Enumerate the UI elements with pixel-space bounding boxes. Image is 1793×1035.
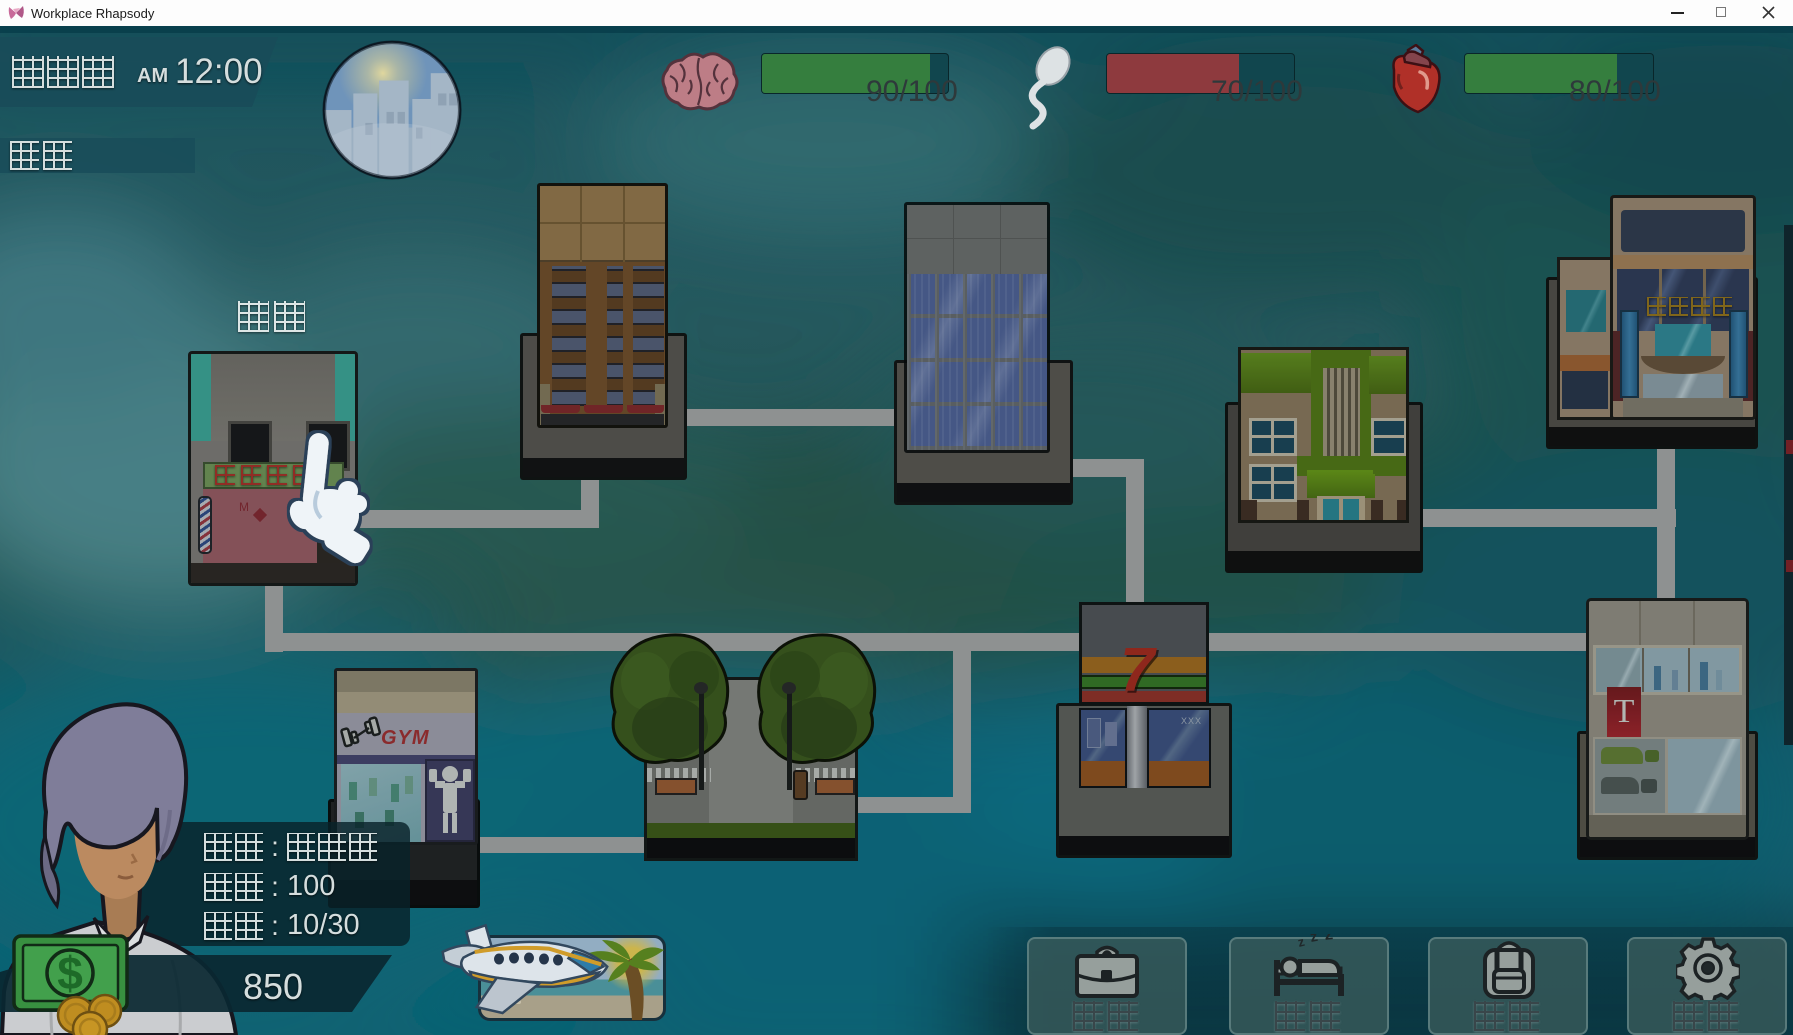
svg-text:z: z: [1309, 934, 1319, 946]
svg-text:z: z: [1296, 934, 1306, 950]
svg-text:z: z: [1323, 934, 1333, 944]
svg-text:$: $: [57, 947, 83, 999]
